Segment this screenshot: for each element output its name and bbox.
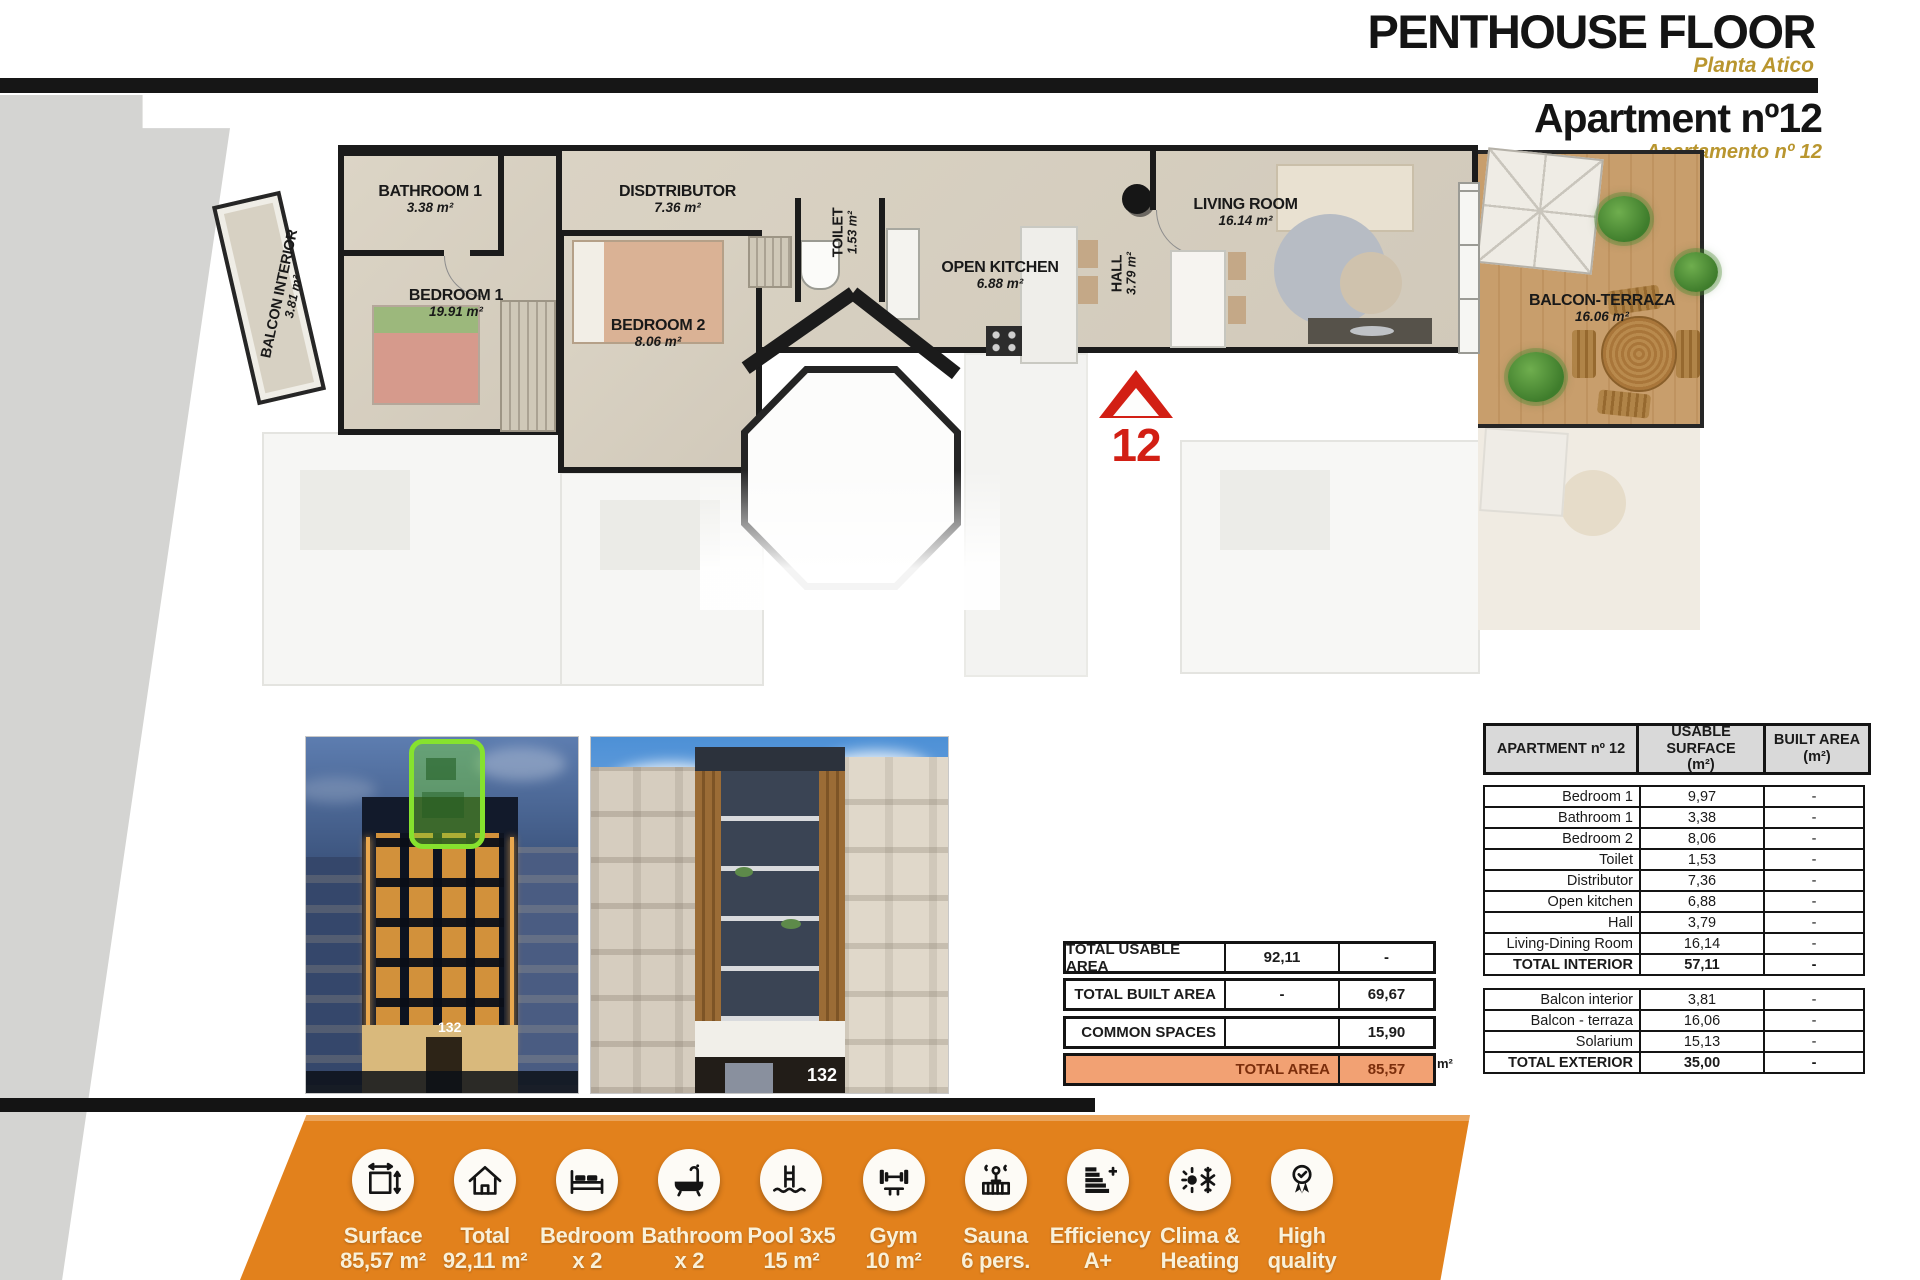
sink-unit — [886, 228, 920, 320]
house-icon — [454, 1149, 516, 1211]
feature-value: 6 pers. — [948, 1249, 1044, 1274]
header-text: BUILT AREA — [1774, 732, 1860, 749]
feature-pool: Pool 3x5 15 m² — [743, 1149, 839, 1273]
penthouse-highlight — [409, 739, 485, 849]
lit-windows-grid — [376, 833, 504, 1047]
summary-label: TOTAL BUILT AREA — [1066, 981, 1226, 1008]
summary-built-value: 15,90 — [1340, 1019, 1433, 1046]
dining-table — [1170, 250, 1226, 348]
cloud — [476, 747, 566, 781]
unit-marker: 12 — [1090, 370, 1182, 468]
page-title: PENTHOUSE FLOOR — [1367, 4, 1815, 59]
neighbor-building — [518, 847, 578, 1093]
neighbor-building — [841, 757, 948, 1093]
feature-value: 10 m² — [846, 1249, 942, 1274]
row-label: Balcon interior — [1485, 990, 1641, 1009]
building-number: 132 — [807, 1065, 837, 1086]
pool-icon — [760, 1149, 822, 1211]
row-usable: 6,88 — [1641, 892, 1765, 911]
row-usable: 3,38 — [1641, 808, 1765, 827]
quality-icon — [1271, 1149, 1333, 1211]
balcony-glazing — [1458, 182, 1480, 354]
room-label-toilet: TOILET1.53 m² — [832, 177, 861, 287]
feature-clima: Clima & Heating — [1152, 1149, 1248, 1273]
row-usable: 16,14 — [1641, 934, 1765, 953]
row-label: Bathroom 1 — [1485, 808, 1641, 827]
summary-unit: m² — [1437, 1056, 1453, 1071]
unit-marker-triangle — [1099, 370, 1173, 418]
terrace-table — [1601, 316, 1677, 392]
feature-title: Surface — [335, 1224, 431, 1249]
header-apartment: APARTMENT nº 12 — [1486, 726, 1639, 772]
feature-value: 15 m² — [743, 1249, 839, 1274]
table-row: Balcon interior 3,81 - — [1483, 988, 1865, 1011]
room-label-bedroom1: BEDROOM 119.91 m² — [381, 288, 531, 320]
feature-title: Pool 3x5 — [743, 1224, 839, 1249]
row-built: - — [1765, 1032, 1863, 1051]
table-row: Toilet 1,53 - — [1483, 848, 1865, 871]
row-usable: 1,53 — [1641, 850, 1765, 869]
feature-bathroom: Bathroom x 2 — [641, 1149, 737, 1273]
row-usable: 8,06 — [1641, 829, 1765, 848]
efficiency-icon — [1067, 1149, 1129, 1211]
cooktop — [986, 326, 1022, 356]
summary-label: COMMON SPACES — [1066, 1019, 1226, 1046]
table-row: Bathroom 1 3,38 - — [1483, 806, 1865, 829]
feature-title: Clima & — [1152, 1224, 1248, 1249]
brochure-page: PENTHOUSE FLOOR Planta Atico Apartment n… — [0, 0, 1920, 1280]
row-usable: 9,97 — [1641, 787, 1765, 806]
summary-usable-value: - — [1226, 981, 1340, 1008]
header-text: USABLE SURFACE — [1639, 724, 1763, 757]
row-label: TOTAL EXTERIOR — [1485, 1053, 1641, 1072]
wood-slat-column — [695, 771, 721, 1021]
terrace-chair — [1676, 330, 1700, 378]
table-row: Open kitchen 6,88 - — [1483, 890, 1865, 913]
building-number: 132 — [438, 1019, 461, 1035]
row-usable: 35,00 — [1641, 1053, 1765, 1072]
white-band — [695, 1021, 845, 1057]
sauna-icon — [965, 1149, 1027, 1211]
feature-items: Surface 85,57 m² Total 92,11 m² Bedroom … — [335, 1149, 1350, 1273]
summary-built-value: 69,67 — [1340, 981, 1433, 1008]
table-row: TOTAL EXTERIOR 35,00 - — [1483, 1051, 1865, 1074]
area-table-header: APARTMENT nº 12 USABLE SURFACE (m²) BUIL… — [1483, 723, 1871, 775]
page-subtitle: Planta Atico — [1693, 54, 1814, 78]
facade-light-strip — [366, 837, 370, 1053]
summary-total-value: 85,57 — [1340, 1056, 1433, 1083]
row-label: Living-Dining Room — [1485, 934, 1641, 953]
row-built: - — [1765, 871, 1863, 890]
wall-segment — [795, 198, 801, 302]
exterior-rows-group: Balcon interior 3,81 - Balcon - terraza … — [1483, 990, 1865, 1074]
ghost-terrace-table — [1560, 470, 1626, 536]
ghost-furniture — [300, 470, 410, 550]
wall-segment — [1150, 150, 1156, 210]
feature-gym: Gym 10 m² — [846, 1149, 942, 1273]
wall-segment — [879, 198, 885, 302]
photo-building-night: 132 — [305, 736, 579, 1094]
feature-title: Total — [437, 1224, 533, 1249]
unit-number: 12 — [1090, 422, 1182, 468]
row-label: Toilet — [1485, 850, 1641, 869]
bath-icon — [658, 1149, 720, 1211]
feature-title: High — [1254, 1224, 1350, 1249]
features-banner: Surface 85,57 m² Total 92,11 m² Bedroom … — [240, 1115, 1470, 1280]
parapet — [695, 747, 845, 771]
wall-segment — [344, 250, 444, 256]
row-label: Bedroom 2 — [1485, 829, 1641, 848]
row-built: - — [1765, 955, 1863, 974]
row-built: - — [1765, 808, 1863, 827]
clima-heating-icon — [1169, 1149, 1231, 1211]
table-row: TOTAL INTERIOR 57,11 - — [1483, 953, 1865, 976]
highlight-detail — [426, 758, 456, 780]
row-usable: 16,06 — [1641, 1011, 1765, 1030]
feature-value: A+ — [1050, 1249, 1146, 1274]
summary-row-common: COMMON SPACES 15,90 — [1063, 1016, 1436, 1049]
kitchen-counter — [1020, 226, 1078, 364]
table-row: Living-Dining Room 16,14 - — [1483, 932, 1865, 955]
header-divider-bar — [0, 78, 1818, 93]
parasol — [1476, 147, 1603, 274]
row-built: - — [1765, 990, 1863, 1009]
feature-efficiency: Efficiency A+ — [1050, 1149, 1146, 1273]
row-usable: 3,79 — [1641, 913, 1765, 932]
row-label: Distributor — [1485, 871, 1641, 890]
interior-rows-group: Bedroom 1 9,97 - Bathroom 1 3,38 - Bedro… — [1483, 787, 1865, 976]
table-row: Hall 3,79 - — [1483, 911, 1865, 934]
summary-row-built: TOTAL BUILT AREA - 69,67 — [1063, 978, 1436, 1011]
feature-title: Sauna — [948, 1224, 1044, 1249]
summary-row-usable: TOTAL USABLE AREA 92,11 - — [1063, 941, 1436, 974]
plant — [1598, 196, 1650, 242]
tv — [1350, 326, 1394, 336]
table-row: Solarium 15,13 - — [1483, 1030, 1865, 1053]
plant — [1508, 352, 1564, 402]
dining-chair — [1078, 240, 1098, 268]
bed-icon — [556, 1149, 618, 1211]
row-built: - — [1765, 787, 1863, 806]
gym-icon — [863, 1149, 925, 1211]
summary-usable-value: 92,11 — [1226, 944, 1340, 971]
row-usable: 7,36 — [1641, 871, 1765, 890]
row-built: - — [1765, 1011, 1863, 1030]
row-built: - — [1765, 892, 1863, 911]
highlight-detail — [422, 792, 464, 818]
banner-highlight — [240, 1115, 1470, 1121]
rug-small — [1340, 252, 1402, 314]
row-label: TOTAL INTERIOR — [1485, 955, 1641, 974]
balcony-plant — [781, 919, 801, 929]
feature-quality: High quality — [1254, 1149, 1350, 1273]
banner-top-bar — [0, 1098, 1095, 1112]
plant — [1674, 252, 1718, 292]
table-row: Bedroom 2 8,06 - — [1483, 827, 1865, 850]
row-built: - — [1765, 829, 1863, 848]
feature-surface: Surface 85,57 m² — [335, 1149, 431, 1273]
header-text: APARTMENT nº 12 — [1497, 741, 1625, 758]
feature-bedroom: Bedroom x 2 — [539, 1149, 635, 1273]
feature-value: 92,11 m² — [437, 1249, 533, 1274]
table-row: Distributor 7,36 - — [1483, 869, 1865, 892]
feature-value: quality — [1254, 1249, 1350, 1274]
room-label-bathroom1: BATHROOM 13.38 m² — [355, 184, 505, 216]
surface-icon — [352, 1149, 414, 1211]
header-unit: (m²) — [1803, 749, 1830, 766]
ghost-umbrella — [1479, 427, 1569, 517]
dining-chair — [1228, 252, 1246, 280]
feature-title: Gym — [846, 1224, 942, 1249]
row-usable: 3,81 — [1641, 990, 1765, 1009]
summary-label: TOTAL USABLE AREA — [1066, 944, 1226, 971]
octagon-fade — [700, 470, 1000, 610]
feature-value: Heating — [1152, 1249, 1248, 1274]
feature-value: 85,57 m² — [335, 1249, 431, 1274]
row-built: - — [1765, 934, 1863, 953]
row-label: Open kitchen — [1485, 892, 1641, 911]
feature-value: x 2 — [539, 1249, 635, 1274]
facade-light-strip — [510, 837, 514, 1053]
row-built: - — [1765, 850, 1863, 869]
unit-marker-triangle-inner — [1113, 388, 1159, 416]
room-label-hall: HALL3.79 m² — [1111, 218, 1140, 328]
photo-building-day: 132 — [590, 736, 949, 1094]
entrance-glass-door — [725, 1063, 773, 1094]
feature-title: Efficiency — [1050, 1224, 1146, 1249]
row-built: - — [1765, 913, 1863, 932]
street-shadow — [306, 1071, 578, 1093]
wood-slat-column — [819, 771, 845, 1021]
feature-sauna: Sauna 6 pers. — [948, 1149, 1044, 1273]
wardrobe — [500, 300, 556, 432]
table-row: Balcon - terraza 16,06 - — [1483, 1009, 1865, 1032]
summary-label: TOTAL AREA — [1066, 1056, 1340, 1083]
bed-1 — [372, 305, 480, 405]
dining-chair — [1228, 296, 1246, 324]
header-unit: (m²) — [1687, 757, 1714, 774]
table-row: Bedroom 1 9,97 - — [1483, 785, 1865, 808]
row-usable: 57,11 — [1641, 955, 1765, 974]
feature-title: Bedroom — [539, 1224, 635, 1249]
balcony-plant — [735, 867, 753, 877]
header-usable-surface: USABLE SURFACE (m²) — [1639, 726, 1766, 772]
neighbor-building — [306, 857, 364, 1093]
ghost-furniture — [1220, 470, 1330, 550]
row-label: Solarium — [1485, 1032, 1641, 1051]
room-label-bedroom2: BEDROOM 28.06 m² — [583, 318, 733, 350]
header-built-area: BUILT AREA (m²) — [1766, 726, 1868, 772]
closet — [748, 236, 792, 288]
row-label: Bedroom 1 — [1485, 787, 1641, 806]
feature-title: Bathroom — [641, 1224, 737, 1249]
summary-row-total-area: TOTAL AREA 85,57 — [1063, 1053, 1436, 1086]
wall-segment — [470, 250, 504, 256]
neighbor-building — [591, 767, 699, 1093]
summary-usable-value — [1226, 1019, 1340, 1046]
feature-total: Total 92,11 m² — [437, 1149, 533, 1273]
room-label-balcon-terraza: BALCON-TERRAZA16.06 m² — [1512, 293, 1692, 325]
terrace-chair — [1572, 330, 1596, 378]
room-label-distributor: DISDTRIBUTOR7.36 m² — [600, 184, 755, 216]
summary-built-value: - — [1340, 944, 1433, 971]
main-building-day: 132 — [695, 747, 845, 1093]
apartment-title: Apartment nº12 — [1534, 95, 1822, 142]
figure-icon — [1122, 184, 1152, 214]
room-label-living-room: LIVING ROOM16.14 m² — [1168, 197, 1323, 229]
row-built: - — [1765, 1053, 1863, 1072]
feature-value: x 2 — [641, 1249, 737, 1274]
row-label: Balcon - terraza — [1485, 1011, 1641, 1030]
room-label-open-kitchen: OPEN KITCHEN6.88 m² — [922, 260, 1078, 292]
dining-chair — [1078, 276, 1098, 304]
row-label: Hall — [1485, 913, 1641, 932]
row-usable: 15,13 — [1641, 1032, 1765, 1051]
